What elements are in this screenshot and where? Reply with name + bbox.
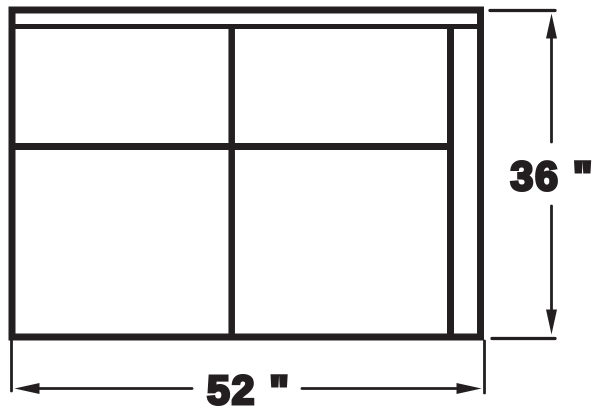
svg-text:52 ": 52 " bbox=[207, 367, 291, 412]
svg-text:36 ": 36 " bbox=[511, 153, 595, 199]
